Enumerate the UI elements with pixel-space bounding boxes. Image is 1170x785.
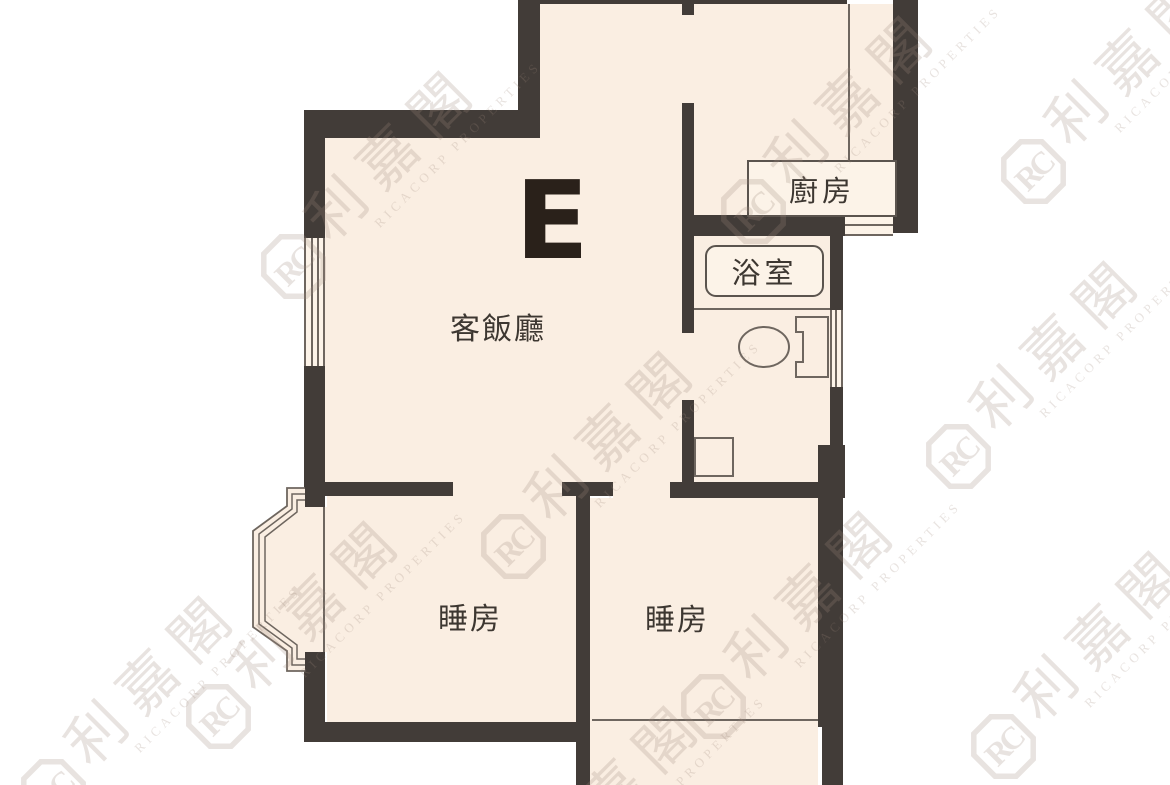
watermark: RC 利嘉閣 RICACORP PROPERTIES bbox=[910, 205, 1170, 504]
room-label-kitchen: 廚房 bbox=[789, 168, 855, 210]
bay-window bbox=[250, 480, 330, 680]
floorplan: 廚房 浴室 E 客飯廳 睡房 睡房 RC 利嘉閣 RICACORP PROPER… bbox=[0, 0, 1170, 785]
floor-door-kitchen bbox=[682, 15, 695, 103]
ricacorp-logo-icon: RC bbox=[959, 702, 1048, 785]
toilet-icon bbox=[735, 310, 835, 385]
bedroom2-bay-line bbox=[592, 719, 818, 721]
kitchen-counter-line bbox=[848, 4, 850, 160]
ricacorp-logo-icon: RC bbox=[989, 127, 1078, 216]
wall-bedroom2-right bbox=[818, 447, 843, 727]
ricacorp-logo-icon: RC bbox=[174, 672, 263, 761]
watermark-brand-cjk: 利嘉閣 bbox=[1036, 0, 1170, 156]
ricacorp-logo-icon: RC bbox=[9, 747, 98, 785]
unit-label: E bbox=[515, 168, 589, 276]
watermark-brand-en: RICACORP PROPERTIES bbox=[1079, 0, 1170, 169]
watermark-brand-cjk: 利嘉閣 bbox=[1006, 495, 1170, 731]
svg-text:RC: RC bbox=[1007, 144, 1061, 198]
wall-bath-top bbox=[682, 215, 845, 236]
svg-text:RC: RC bbox=[27, 764, 81, 785]
room-label-bathroom: 浴室 bbox=[731, 250, 797, 292]
watermark-brand-en: RICACORP PROPERTIES bbox=[1004, 248, 1170, 454]
window-living-left bbox=[304, 238, 325, 366]
room-label-bedroom-2: 睡房 bbox=[645, 595, 709, 639]
shower-square bbox=[694, 437, 734, 477]
watermark: RC 利嘉閣 RICACORP PROPERTIES bbox=[955, 495, 1170, 785]
room-label-living-dining: 客飯廳 bbox=[450, 304, 546, 348]
floor-living-top-strip bbox=[540, 4, 682, 138]
wall-bath-left-lower bbox=[682, 400, 694, 482]
wall-living-top bbox=[304, 110, 540, 138]
watermark-brand-cjk: 利嘉閣 bbox=[961, 205, 1170, 441]
wall-bath-right-upper bbox=[830, 236, 843, 310]
floor-door-bathroom bbox=[682, 333, 695, 400]
floor-door-bedroom-1 bbox=[453, 482, 562, 496]
kitchen-label-box: 廚房 bbox=[747, 160, 897, 217]
watermark-brand-en: RICACORP PROPERTIES bbox=[1049, 538, 1170, 744]
svg-text:RC: RC bbox=[977, 719, 1031, 773]
wall-bath-right-lower bbox=[830, 387, 843, 447]
svg-text:RC: RC bbox=[192, 689, 246, 743]
watermark: RC 利嘉閣 RICACORP PROPERTIES bbox=[985, 0, 1170, 220]
bathroom-label-box: 浴室 bbox=[705, 245, 824, 297]
wall-bedroom1-bottom bbox=[305, 722, 576, 742]
wall-bedroom2-top bbox=[670, 482, 820, 498]
svg-text:RC: RC bbox=[932, 429, 986, 483]
wall-left-upper bbox=[304, 138, 325, 238]
wall-divider-tbar bbox=[562, 482, 613, 496]
ricacorp-logo-icon: RC bbox=[914, 412, 1003, 501]
wall-bedroom1-top bbox=[323, 482, 453, 496]
wall-divider-stem bbox=[576, 496, 590, 785]
floor-door-bedroom-2 bbox=[613, 482, 670, 498]
wall-kitchen-stub bbox=[682, 4, 694, 15]
floor-bedroom-2 bbox=[590, 498, 818, 785]
window-kitchen bbox=[845, 215, 893, 236]
room-label-bedroom-1: 睡房 bbox=[438, 594, 502, 638]
wall-bedroom2-right-low bbox=[822, 727, 843, 785]
